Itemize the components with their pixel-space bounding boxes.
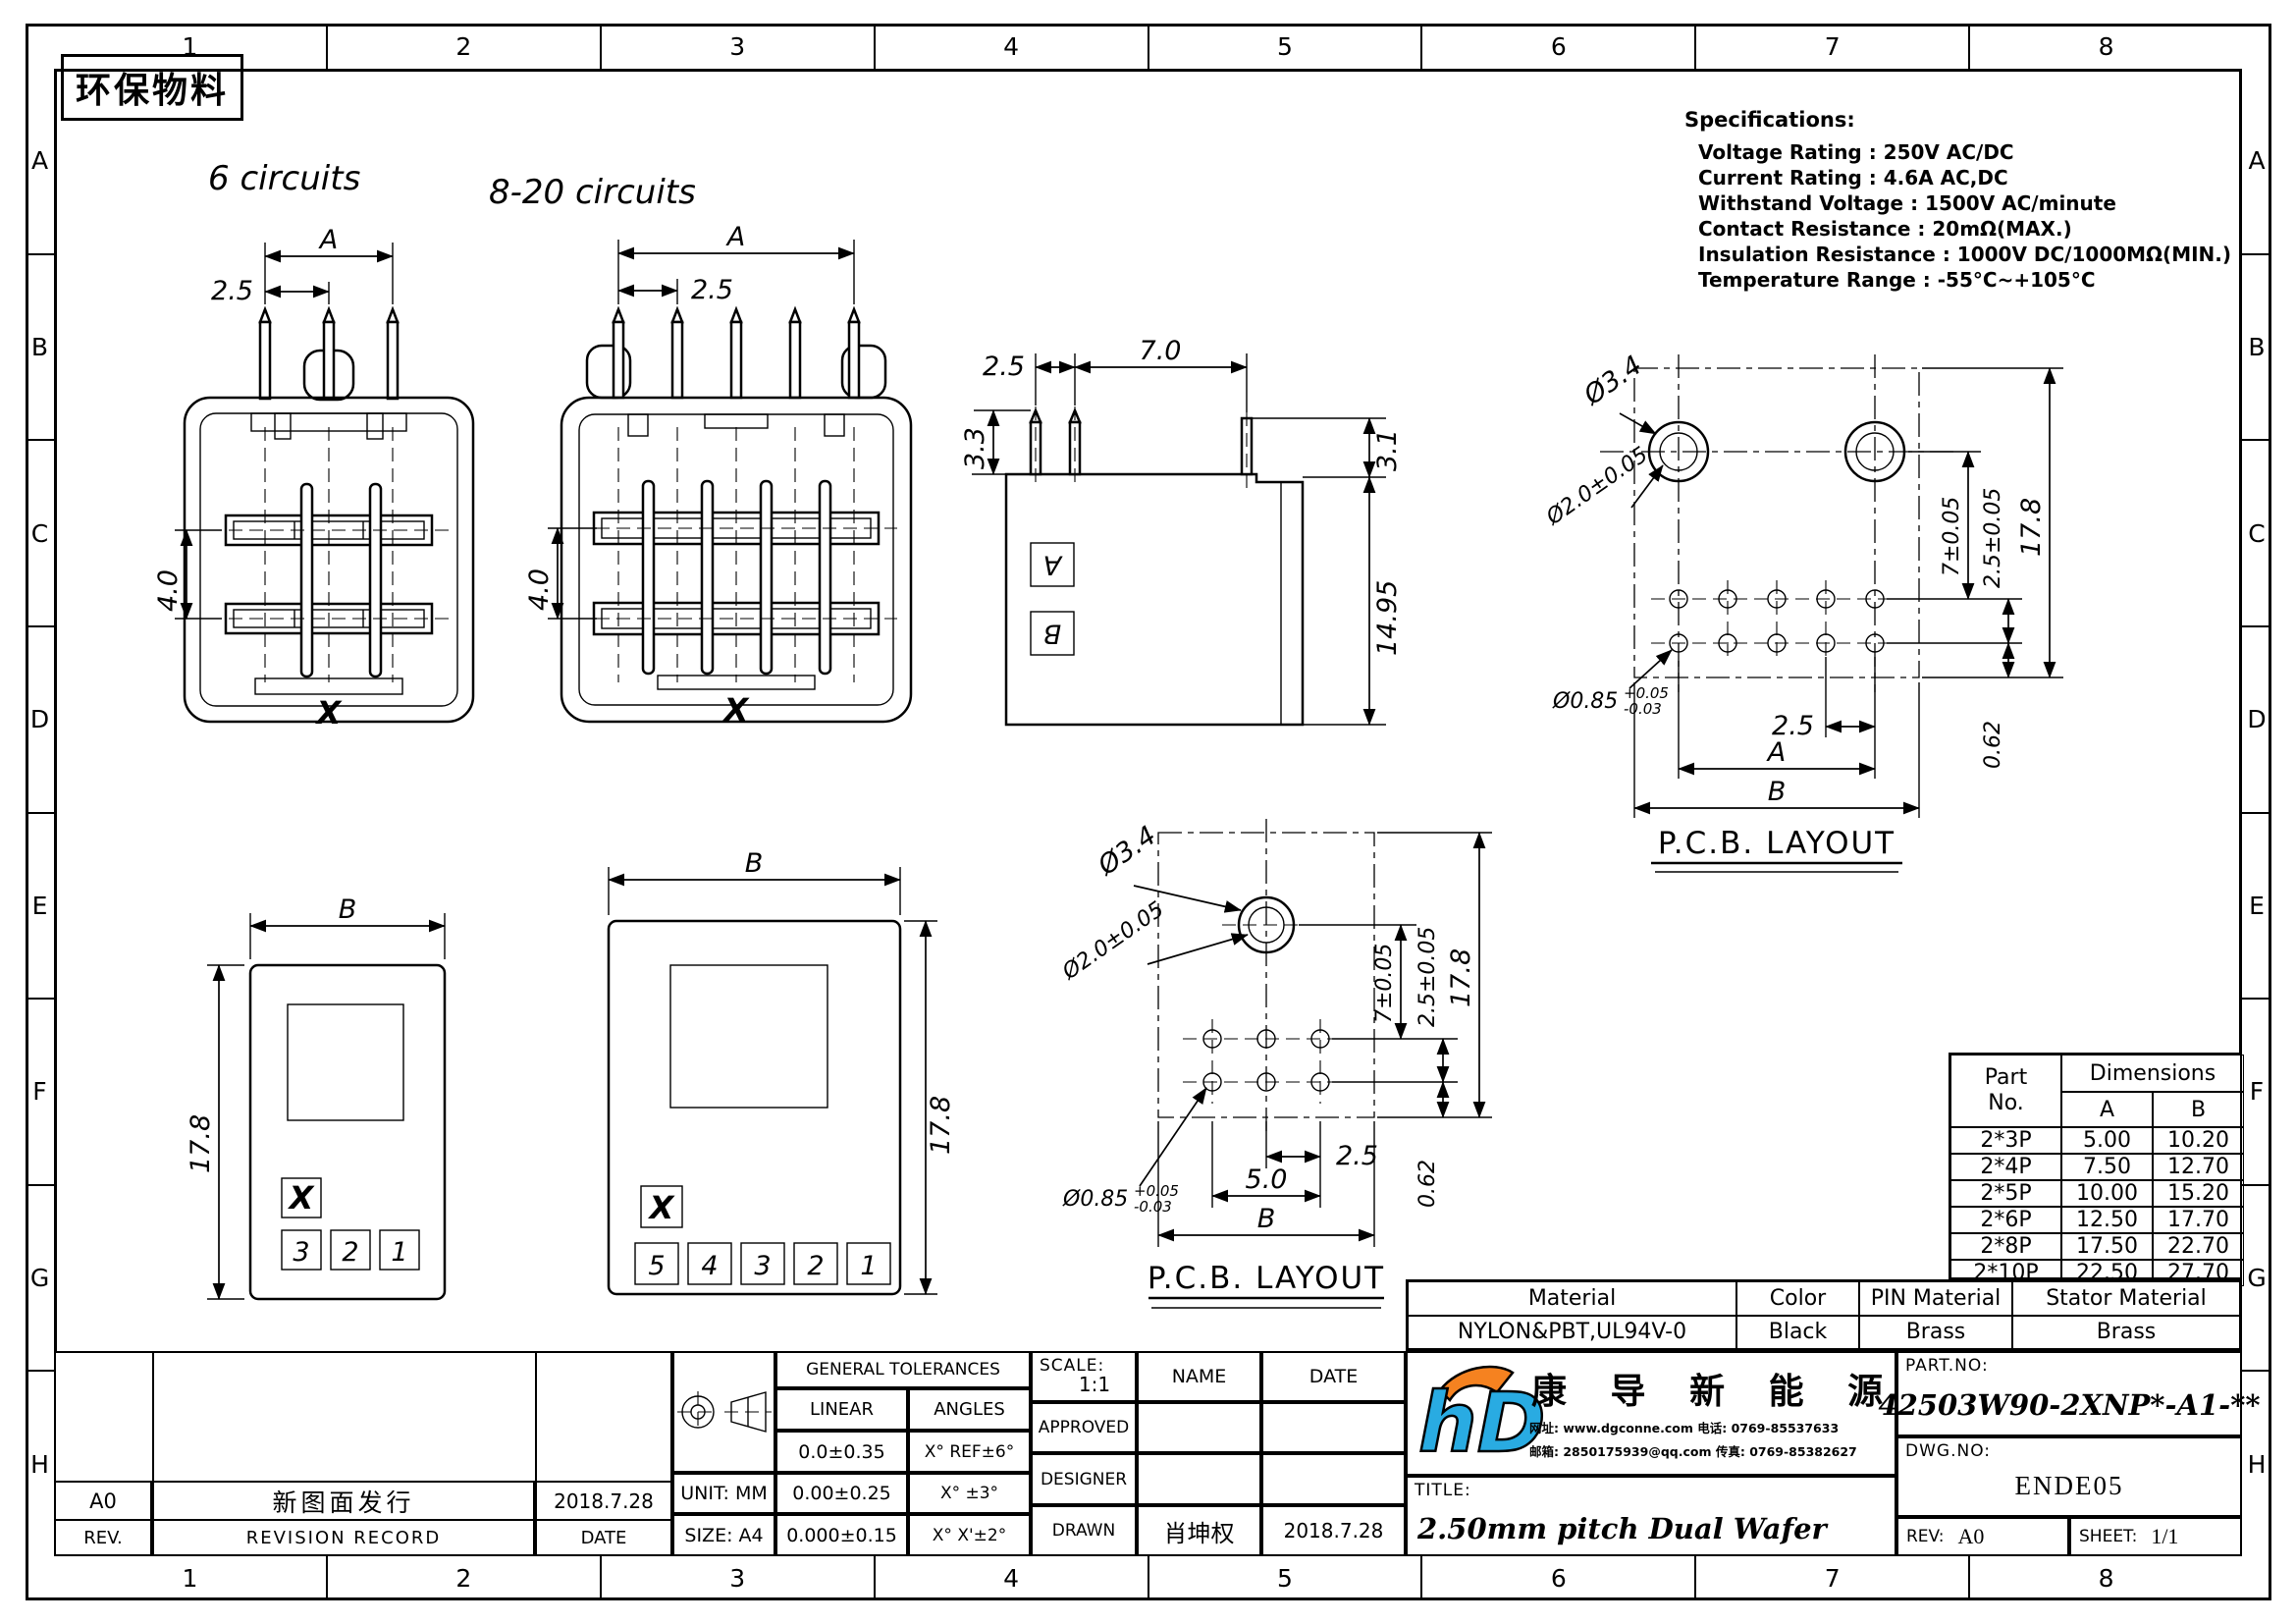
table-cell: 2*5P bbox=[1950, 1180, 2061, 1207]
grid-col-label: 7 bbox=[1694, 1556, 1968, 1600]
table-cell: 2*8P bbox=[1950, 1233, 2061, 1260]
stator-material-header: Stator Material bbox=[2012, 1281, 2240, 1316]
body bbox=[1006, 474, 1303, 725]
projection-symbol-cell bbox=[672, 1351, 775, 1473]
size-cell: SIZE: A4 bbox=[672, 1514, 775, 1556]
pcb-layout-6: Ø3.4 Ø2.0±0.05 Ø0.85 +0.05 -0.03 7±0.05 … bbox=[1045, 815, 1517, 1316]
bottom-view-6-circuits: X 3 2 1 B 17.8 bbox=[182, 889, 486, 1321]
dia-pin-label: Ø0.85 bbox=[1062, 1187, 1128, 1212]
revision-record-header: REVISION RECORD bbox=[152, 1519, 535, 1556]
polarity-mark: X bbox=[288, 1179, 315, 1217]
centerlines bbox=[575, 427, 897, 682]
dim-b: B bbox=[745, 848, 764, 879]
table-cell: 17.50 bbox=[2061, 1233, 2153, 1260]
dim-062: 0.62 bbox=[1981, 721, 2005, 769]
dia-inner-label: Ø2.0±0.05 bbox=[1541, 443, 1652, 531]
table-cell: 2*4P bbox=[1950, 1154, 2061, 1180]
dimensions: 2.5 7.0 3.3 3.1 14.95 bbox=[960, 336, 1403, 725]
approved-label: APPROVED bbox=[1031, 1402, 1137, 1453]
grid-col-label: 5 bbox=[1148, 24, 1421, 69]
material-header: Material bbox=[1408, 1281, 1736, 1316]
pad-number: 3 bbox=[754, 1251, 771, 1281]
spec-line: Voltage Rating : 250V AC/DC bbox=[1698, 139, 2254, 165]
dim-step: 3.1 bbox=[1372, 429, 1403, 471]
grid-row-label: D bbox=[26, 625, 54, 812]
grid-row-label: B bbox=[26, 253, 54, 440]
general-tolerances-header: GENERAL TOLERANCES bbox=[775, 1351, 1031, 1388]
sheet-cell: SHEET: 1/1 bbox=[2069, 1517, 2242, 1556]
table-cell: 15.20 bbox=[2153, 1180, 2244, 1207]
eco-material-label: 环保物料 bbox=[61, 54, 243, 121]
rev-label: REV: bbox=[1906, 1527, 1945, 1546]
color-header: Color bbox=[1736, 1281, 1859, 1316]
header-no: No. bbox=[1988, 1091, 2024, 1116]
grid-row-label: C bbox=[2242, 439, 2271, 625]
pin-holes bbox=[1651, 580, 1902, 663]
approved-name-cell bbox=[1137, 1402, 1261, 1453]
drawn-date-cell: 2018.7.28 bbox=[1261, 1505, 1406, 1556]
grid-col-label: 4 bbox=[874, 1556, 1148, 1600]
grid-row-label: A bbox=[26, 69, 54, 253]
dim-span: 7.0 bbox=[1140, 336, 1182, 366]
rev-value: A0 bbox=[1958, 1524, 1985, 1549]
dim-pin-length: 3.3 bbox=[960, 427, 990, 469]
part-no-value: 42503W90-2XNP*-A1-** bbox=[1878, 1388, 2260, 1422]
dim-25t: 2.5±0.05 bbox=[1415, 927, 1440, 1027]
dim-25t: 2.5±0.05 bbox=[1981, 488, 2005, 588]
dim-7: 7±0.05 bbox=[1372, 944, 1397, 1023]
dimensions: 7±0.05 2.5±0.05 17.8 0.62 2.5 5.0 B bbox=[1158, 833, 1492, 1247]
table-cell: 2*3P bbox=[1950, 1127, 2061, 1154]
dwg-no-value: ENDE05 bbox=[2015, 1471, 2124, 1501]
rev-cell: REV: A0 bbox=[1896, 1517, 2069, 1556]
dim-b: B bbox=[1768, 777, 1787, 807]
pad-number: 3 bbox=[293, 1237, 309, 1268]
dimensions-header: Dimensions bbox=[2061, 1055, 2244, 1092]
cavity bbox=[670, 965, 828, 1108]
grid-row-label: H bbox=[26, 1370, 54, 1556]
dim-height: 17.8 bbox=[926, 1096, 956, 1155]
tolerance-linear-3: 0.000±0.15 bbox=[775, 1514, 908, 1556]
dim-b: B bbox=[1257, 1204, 1276, 1234]
grid-row-label: G bbox=[2242, 1184, 2271, 1371]
dia-outer-label: Ø3.4 bbox=[1577, 351, 1647, 412]
revision-date-header: DATE bbox=[535, 1519, 672, 1556]
drawn-name-cell: 肖坤权 bbox=[1137, 1505, 1261, 1556]
specifications-block: Specifications: Voltage Rating : 250V AC… bbox=[1684, 108, 2254, 293]
company-contact-line-1: 网址: www.dgconne.com 电话: 0769-85537633 bbox=[1529, 1418, 1839, 1436]
grid-col-label: 3 bbox=[600, 24, 874, 69]
tolerance-angle-1: X° REF±6° bbox=[908, 1431, 1031, 1473]
leaders: Ø3.4 Ø2.0±0.05 Ø0.85 +0.05 -0.03 bbox=[1057, 821, 1248, 1216]
sheet-value: 1/1 bbox=[2151, 1524, 2178, 1549]
part-no-header: PartNo. bbox=[1950, 1055, 2061, 1127]
header-b: B bbox=[2153, 1092, 2244, 1127]
drawing-title: 2.50mm pitch Dual Wafer bbox=[1417, 1512, 1827, 1545]
table-cell: 2*6P bbox=[1950, 1207, 2061, 1233]
side-view: A B 2.5 7.0 3.3 3.1 14.95 bbox=[933, 263, 1414, 749]
projection-symbol-icon bbox=[677, 1389, 772, 1435]
part-no-cell: PART.NO: 42503W90-2XNP*-A1-** bbox=[1896, 1351, 2242, 1436]
grid-row-label: C bbox=[26, 439, 54, 625]
material-table: Material Color PIN Material Stator Mater… bbox=[1406, 1279, 2242, 1351]
dim-a: A bbox=[318, 225, 338, 255]
dim-height: 17.8 bbox=[186, 1114, 216, 1173]
dia-pin-tol-dn: -0.03 bbox=[1134, 1198, 1172, 1216]
date-header: DATE bbox=[1261, 1351, 1406, 1402]
orientation-marks: A B bbox=[1031, 543, 1074, 655]
polarity-mark: X bbox=[648, 1189, 675, 1226]
grid-row-label: D bbox=[2242, 625, 2271, 812]
bottom-view-8-20-circuits: X 5 4 3 2 1 B 17.8 bbox=[584, 842, 952, 1319]
dia-pin-label: Ø0.85 bbox=[1552, 689, 1618, 714]
grid-col-label: 5 bbox=[1148, 1556, 1421, 1600]
spec-line: Contact Resistance : 20mΩ(MAX.) bbox=[1698, 216, 2254, 242]
grid-col-label: 1 bbox=[54, 1556, 326, 1600]
view-label-6-circuits: 6 circuits bbox=[208, 159, 360, 198]
grid-col-label: 6 bbox=[1420, 24, 1694, 69]
grid-col-label: 3 bbox=[600, 1556, 874, 1600]
dim-a: A bbox=[1766, 737, 1786, 768]
zone-columns-top: 12345678 bbox=[54, 24, 2242, 69]
dimensions: A 2.5 4.0 X bbox=[153, 225, 393, 731]
dim-b: B bbox=[339, 894, 357, 925]
polarity-mark: X bbox=[315, 694, 343, 731]
scale-label: SCALE: bbox=[1040, 1356, 1104, 1376]
designer-label: DESIGNER bbox=[1031, 1453, 1137, 1505]
spec-line: Insulation Resistance : 1000V DC/1000MΩ(… bbox=[1698, 242, 2254, 267]
grid-col-label: 8 bbox=[1968, 1556, 2242, 1600]
unit-cell: UNIT: MM bbox=[672, 1473, 775, 1514]
title-label: TITLE: bbox=[1415, 1481, 1471, 1500]
revision-rev-value: A0 bbox=[54, 1481, 152, 1521]
scale-cell: SCALE: 1:1 bbox=[1031, 1351, 1137, 1402]
table-cell: 12.50 bbox=[2061, 1207, 2153, 1233]
pcb-layout-title: P.C.B. LAYOUT bbox=[1658, 826, 1896, 861]
drawing-sheet: 12345678 12345678 ABCDEFGH ABCDEFGH 环保物料… bbox=[0, 0, 2296, 1624]
spec-line: Temperature Range : -55°C~+105°C bbox=[1698, 267, 2254, 293]
grid-col-label: 8 bbox=[1968, 24, 2242, 69]
dia-outer-label: Ø3.4 bbox=[1092, 821, 1161, 883]
pad-number: 1 bbox=[860, 1251, 877, 1281]
pins bbox=[260, 309, 398, 400]
grid-col-label: 7 bbox=[1694, 24, 1968, 69]
dim-pitch: 2.5 bbox=[211, 276, 253, 306]
part-no-label: PART.NO: bbox=[1905, 1356, 1989, 1376]
dwg-no-cell: DWG.NO: ENDE05 bbox=[1896, 1436, 2242, 1517]
marks: X 3 2 1 bbox=[282, 1178, 419, 1270]
tolerance-linear-2: 0.00±0.25 bbox=[775, 1473, 908, 1514]
logo-letters: hD bbox=[1418, 1375, 1546, 1471]
pin-material-value: Brass bbox=[1859, 1316, 2012, 1350]
dim-row-spacing: 4.0 bbox=[524, 568, 555, 611]
table-cell: 22.70 bbox=[2153, 1233, 2244, 1260]
dim-25: 2.5 bbox=[1336, 1141, 1378, 1171]
leaders: Ø3.4 Ø2.0±0.05 Ø0.85 +0.05 -0.03 bbox=[1541, 351, 1672, 718]
part-dimensions-table: PartNo. Dimensions A B 2*3P5.0010.20 2*4… bbox=[1949, 1053, 2242, 1279]
revision-date-value: 2018.7.28 bbox=[535, 1481, 672, 1521]
table-cell: 7.50 bbox=[2061, 1154, 2153, 1180]
company-contact-line-2: 邮箱: 2850175939@qq.com 传真: 0769-85382627 bbox=[1529, 1441, 1857, 1460]
header-a: A bbox=[2061, 1092, 2153, 1127]
zone-rows-left: ABCDEFGH bbox=[26, 69, 54, 1556]
company-name: 康 导 新 能 源 bbox=[1531, 1363, 1898, 1414]
revision-record-value: 新图面发行 bbox=[152, 1481, 535, 1521]
material-value: NYLON&PBT,UL94V-0 bbox=[1408, 1316, 1736, 1350]
revision-divider bbox=[535, 1351, 537, 1483]
header-part: Part bbox=[1985, 1065, 2027, 1091]
dim-row-spacing: 4.0 bbox=[153, 569, 184, 612]
table-cell: 17.70 bbox=[2153, 1207, 2244, 1233]
dim-pitch: 2.5 bbox=[691, 275, 733, 305]
tolerance-angle-3: X° X'±2° bbox=[908, 1514, 1031, 1556]
approved-date-cell bbox=[1261, 1402, 1406, 1453]
spec-line: Withstand Voltage : 1500V AC/minute bbox=[1698, 190, 2254, 216]
pad-number: 1 bbox=[391, 1237, 407, 1268]
spec-line: Current Rating : 4.6A AC,DC bbox=[1698, 165, 2254, 190]
mark-a: A bbox=[1043, 550, 1063, 580]
tolerance-angle-2: X° ±3° bbox=[908, 1473, 1031, 1514]
table-cell: 5.00 bbox=[2061, 1127, 2153, 1154]
dim-pitch: 2.5 bbox=[983, 352, 1025, 382]
color-value: Black bbox=[1736, 1316, 1859, 1350]
designer-date-cell bbox=[1261, 1453, 1406, 1505]
pad-number: 2 bbox=[342, 1237, 358, 1268]
drawn-label: DRAWN bbox=[1031, 1505, 1137, 1556]
designer-name-cell bbox=[1137, 1453, 1261, 1505]
front-view-8-20-circuits: A 2.5 4.0 X bbox=[540, 216, 933, 746]
revision-divider bbox=[152, 1351, 154, 1483]
dim-178: 17.8 bbox=[1446, 948, 1476, 1007]
stator-material-value: Brass bbox=[2012, 1316, 2240, 1350]
dwg-no-label: DWG.NO: bbox=[1905, 1441, 1991, 1461]
table-cell: 12.70 bbox=[2153, 1154, 2244, 1180]
grid-col-label: 2 bbox=[326, 24, 600, 69]
polarity-mark: X bbox=[722, 691, 750, 729]
mark-b: B bbox=[1043, 619, 1062, 649]
table-cell: 10.00 bbox=[2061, 1180, 2153, 1207]
dia-inner-label: Ø2.0±0.05 bbox=[1057, 897, 1168, 986]
scale-value: 1:1 bbox=[1079, 1373, 1110, 1396]
pins bbox=[587, 309, 885, 398]
grid-row-label: F bbox=[26, 998, 54, 1184]
grid-col-label: 4 bbox=[874, 24, 1148, 69]
view-label-8-20-circuits: 8-20 circuits bbox=[489, 173, 696, 212]
dim-a: A bbox=[725, 222, 745, 252]
grid-row-label: E bbox=[2242, 812, 2271, 999]
specs-title: Specifications: bbox=[1684, 108, 2254, 132]
revision-rev-header: REV. bbox=[54, 1519, 152, 1556]
dim-7: 7±0.05 bbox=[1940, 497, 1964, 576]
dim-50: 5.0 bbox=[1246, 1164, 1288, 1195]
dim-062: 0.62 bbox=[1415, 1160, 1440, 1208]
table-cell: 10.20 bbox=[2153, 1127, 2244, 1154]
grid-row-label: G bbox=[26, 1184, 54, 1371]
pad-number: 2 bbox=[807, 1251, 824, 1281]
linear-header: LINEAR bbox=[775, 1388, 908, 1431]
grid-row-label: F bbox=[2242, 998, 2271, 1184]
grid-col-label: 6 bbox=[1420, 1556, 1694, 1600]
tolerance-linear-1: 0.0±0.35 bbox=[775, 1431, 908, 1473]
front-view-6-circuits: A 2.5 4.0 X bbox=[157, 221, 501, 741]
zone-columns-bottom: 12345678 bbox=[54, 1556, 2242, 1600]
pin-material-header: PIN Material bbox=[1859, 1281, 2012, 1316]
pins bbox=[1031, 406, 1252, 489]
sheet-label: SHEET: bbox=[2079, 1527, 2137, 1546]
pcb-layout-8: Ø3.4 Ø2.0±0.05 Ø0.85 +0.05 -0.03 7±0.05 … bbox=[1541, 349, 2101, 874]
dim-178: 17.8 bbox=[2016, 498, 2047, 557]
pad-number: 4 bbox=[701, 1251, 718, 1281]
dim-height: 14.95 bbox=[1372, 580, 1403, 656]
dimensions: A 2.5 4.0 X bbox=[524, 222, 854, 729]
grid-col-label: 2 bbox=[326, 1556, 600, 1600]
dia-pin-tol-dn: -0.03 bbox=[1624, 700, 1662, 718]
marks: X 5 4 3 2 1 bbox=[635, 1186, 890, 1284]
company-logo: hD bbox=[1416, 1359, 1519, 1467]
cavity bbox=[288, 1004, 403, 1120]
angles-header: ANGLES bbox=[908, 1388, 1031, 1431]
name-header: NAME bbox=[1137, 1351, 1261, 1402]
pad-number: 5 bbox=[648, 1251, 665, 1281]
pcb-layout-title: P.C.B. LAYOUT bbox=[1148, 1261, 1385, 1296]
revision-empty-area bbox=[54, 1351, 672, 1483]
grid-row-label: E bbox=[26, 812, 54, 999]
centerlines bbox=[208, 427, 450, 682]
